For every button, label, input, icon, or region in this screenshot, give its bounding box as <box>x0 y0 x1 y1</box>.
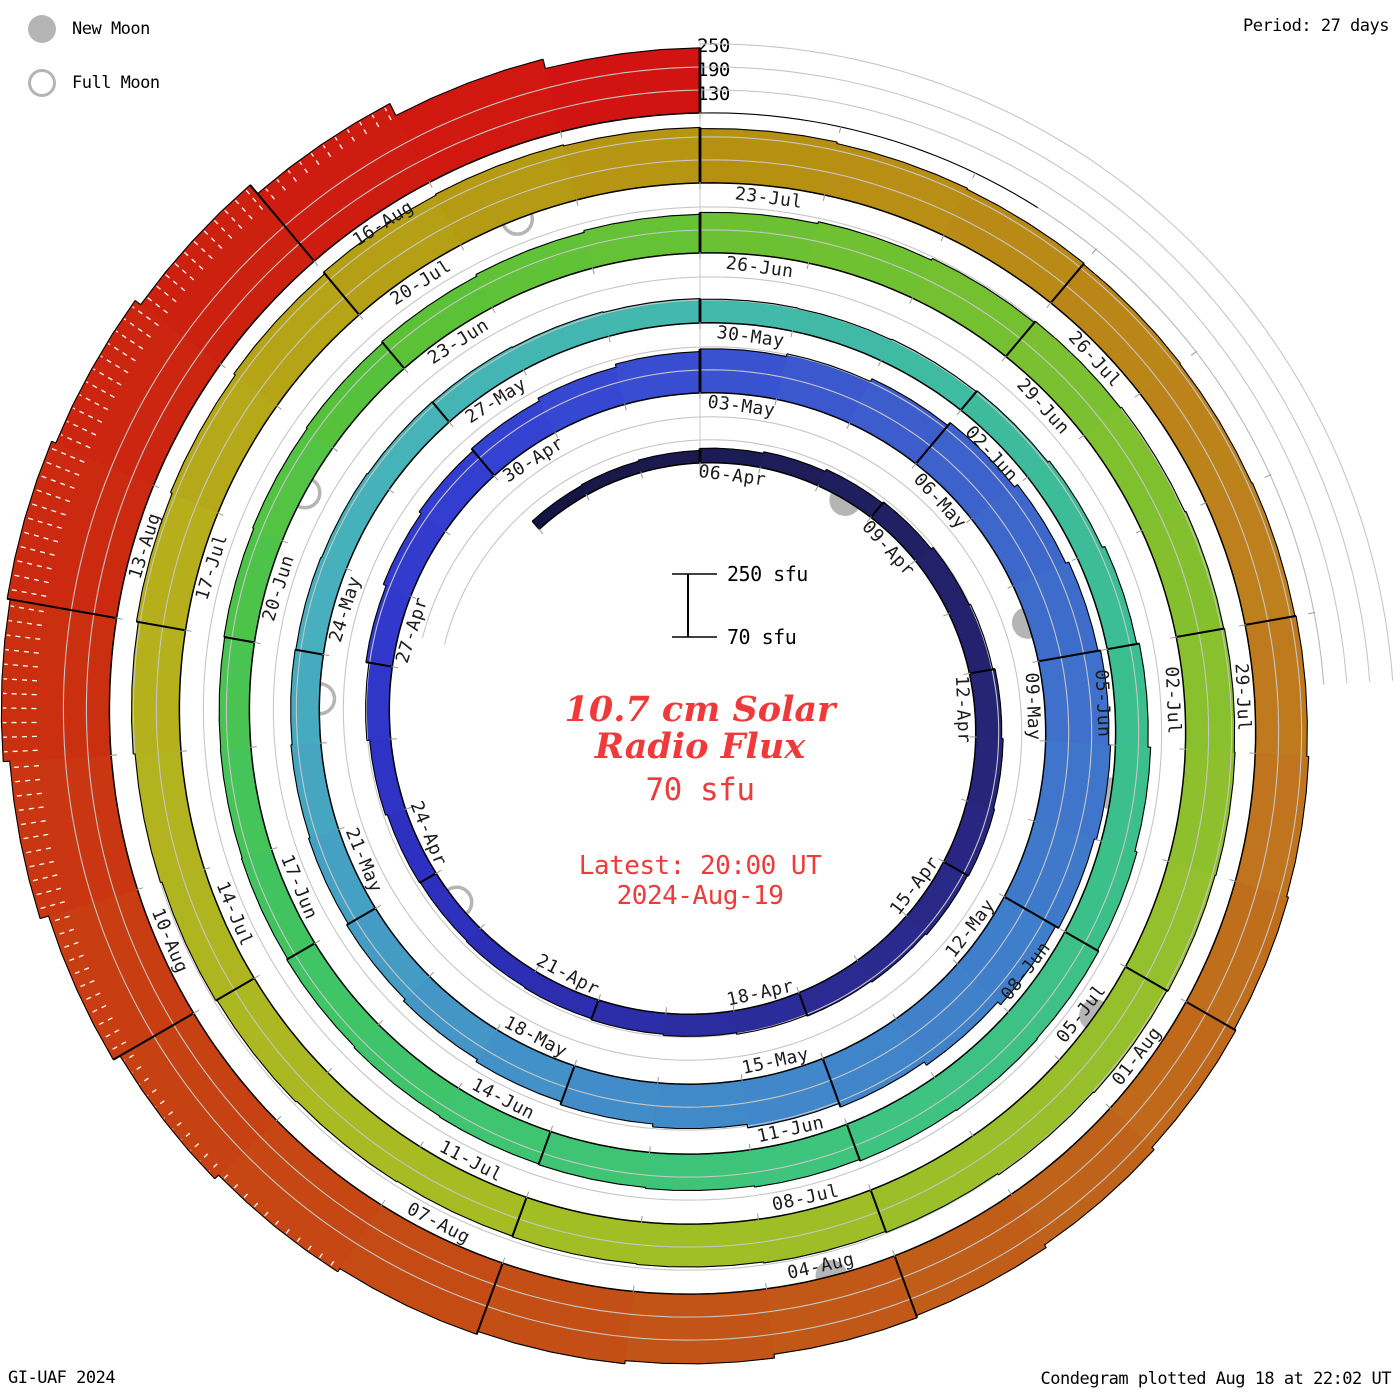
full-moon-icon <box>28 69 56 97</box>
boundary-line <box>440 1116 441 1117</box>
radial-axis-labels: 250190130 <box>697 35 730 105</box>
boundary-line <box>327 1068 332 1073</box>
flux-scale-bar: 250 sfu 70 sfu <box>672 562 808 649</box>
boundary-line <box>786 354 787 357</box>
radial-axis-tick: 250 <box>697 35 730 57</box>
flux-bar <box>584 214 700 268</box>
boundary-line <box>480 924 485 929</box>
flux-bar <box>949 604 993 673</box>
boundary-line <box>1079 435 1085 439</box>
flux-bar <box>532 486 586 530</box>
boundary-line <box>1047 302 1052 307</box>
flux-bar <box>347 908 430 999</box>
boundary-line <box>653 1124 654 1128</box>
boundary-line <box>931 1072 935 1078</box>
boundary-line <box>359 314 364 319</box>
boundary-line <box>969 604 971 605</box>
boundary-line <box>512 347 513 348</box>
boundary-line <box>912 463 917 468</box>
legend-new-moon-row: New Moon <box>28 15 160 43</box>
flux-bar <box>383 514 445 597</box>
boundary-line <box>763 452 764 454</box>
scale-top-label: 250 sfu <box>727 562 808 586</box>
boundary-line <box>871 981 872 982</box>
boundary-line <box>388 489 394 493</box>
boundary-line <box>1191 351 1197 355</box>
boundary-line <box>581 485 582 486</box>
boundary-line <box>220 364 226 368</box>
credit-label: GI-UAF 2024 <box>8 1368 115 1388</box>
flux-bar <box>306 343 404 448</box>
new-moon-label: New Moon <box>72 19 150 39</box>
chart-title-line2: Radio Flux <box>0 729 1400 766</box>
boundary-line <box>397 1181 398 1182</box>
boundary-line <box>309 838 311 839</box>
flux-bar <box>512 1197 641 1264</box>
flux-bar <box>825 144 968 236</box>
boundary-line <box>1023 477 1029 481</box>
flux-bar <box>538 367 625 432</box>
boundary-line <box>774 1354 775 1358</box>
boundary-line <box>993 809 995 810</box>
boundary-line <box>404 368 409 373</box>
boundary-line <box>584 231 585 233</box>
boundary-line <box>891 339 892 340</box>
flux-bar <box>1142 511 1224 637</box>
new-moon-icon <box>28 15 56 43</box>
flux-bar <box>637 1219 764 1267</box>
latest-line1: Latest: 20:00 UT <box>0 852 1400 882</box>
boundary-line <box>367 473 368 474</box>
latest-measurement: Latest: 20:00 UT 2024-Aug-19 <box>0 852 1400 912</box>
boundary-line <box>747 1124 748 1128</box>
boundary-line <box>449 421 454 426</box>
latest-line2: 2024-Aug-19 <box>0 882 1400 912</box>
full-moon-label: Full Moon <box>72 73 160 93</box>
boundary-line <box>496 1025 500 1031</box>
flux-bar <box>403 976 497 1059</box>
boundary-line <box>1092 249 1097 254</box>
boundary-line <box>854 955 858 961</box>
boundary-line <box>386 815 388 816</box>
boundary-line <box>1055 1056 1060 1061</box>
chart-title-line1: 10.7 cm Solar <box>0 692 1400 729</box>
boundary-line <box>1036 1038 1037 1039</box>
boundary-line <box>332 447 338 451</box>
boundary-line <box>539 529 544 534</box>
flux-bar <box>476 232 593 307</box>
plotted-timestamp: Condegram plotted Aug 18 at 22:02 UT <box>1041 1369 1391 1389</box>
flux-bar <box>581 461 641 495</box>
flux-bar <box>645 1150 754 1191</box>
boundary-line <box>1185 511 1187 512</box>
period-label: Period: 27 days <box>1243 16 1389 36</box>
boundary-line <box>435 194 436 195</box>
boundary-line <box>429 972 434 977</box>
boundary-line <box>494 475 499 480</box>
boundary-line <box>1251 483 1252 484</box>
chart-title: 10.7 cm Solar Radio Flux <box>0 692 1400 766</box>
flux-bar <box>368 402 449 490</box>
moon-legend: New Moon Full Moon <box>28 15 160 97</box>
boundary-line <box>956 1110 957 1111</box>
boundary-line <box>458 1083 462 1089</box>
boundary-line <box>253 528 255 529</box>
radial-axis-tick: 130 <box>697 83 730 105</box>
flux-bar <box>539 1132 650 1188</box>
boundary-line <box>276 405 282 409</box>
boundary-line <box>314 260 319 265</box>
flux-bar <box>354 1024 459 1116</box>
boundary-line <box>525 987 526 988</box>
boundary-line <box>1179 363 1180 364</box>
boundary-line <box>1002 356 1007 361</box>
boundary-line <box>321 557 322 558</box>
boundary-line <box>276 1116 281 1121</box>
flux-bar <box>809 222 932 298</box>
boundary-line <box>420 1142 424 1148</box>
boundary-line <box>818 222 819 224</box>
flux-bar <box>287 943 379 1046</box>
baseline-value-label: 70 sfu <box>0 772 1400 808</box>
boundary-line <box>1106 1104 1111 1109</box>
boundary-line <box>967 188 968 190</box>
boundary-line <box>466 941 467 942</box>
boundary-line <box>1135 393 1141 397</box>
boundary-line <box>893 1014 897 1020</box>
boundary-line <box>1004 1008 1009 1013</box>
radial-axis-tick: 190 <box>697 59 730 81</box>
boundary-line <box>957 409 962 414</box>
flux-bar <box>625 1289 774 1364</box>
scale-bottom-label: 70 sfu <box>727 625 796 649</box>
condegram-page: 25019013006-Apr09-Apr12-Apr15-Apr18-Apr2… <box>0 0 1400 1400</box>
boundary-line <box>615 364 616 368</box>
legend-full-moon-row: Full Moon <box>28 69 160 97</box>
boundary-line <box>378 1020 383 1025</box>
flux-bar <box>466 928 535 987</box>
boundary-line <box>444 531 450 535</box>
boundary-line <box>970 1131 974 1137</box>
